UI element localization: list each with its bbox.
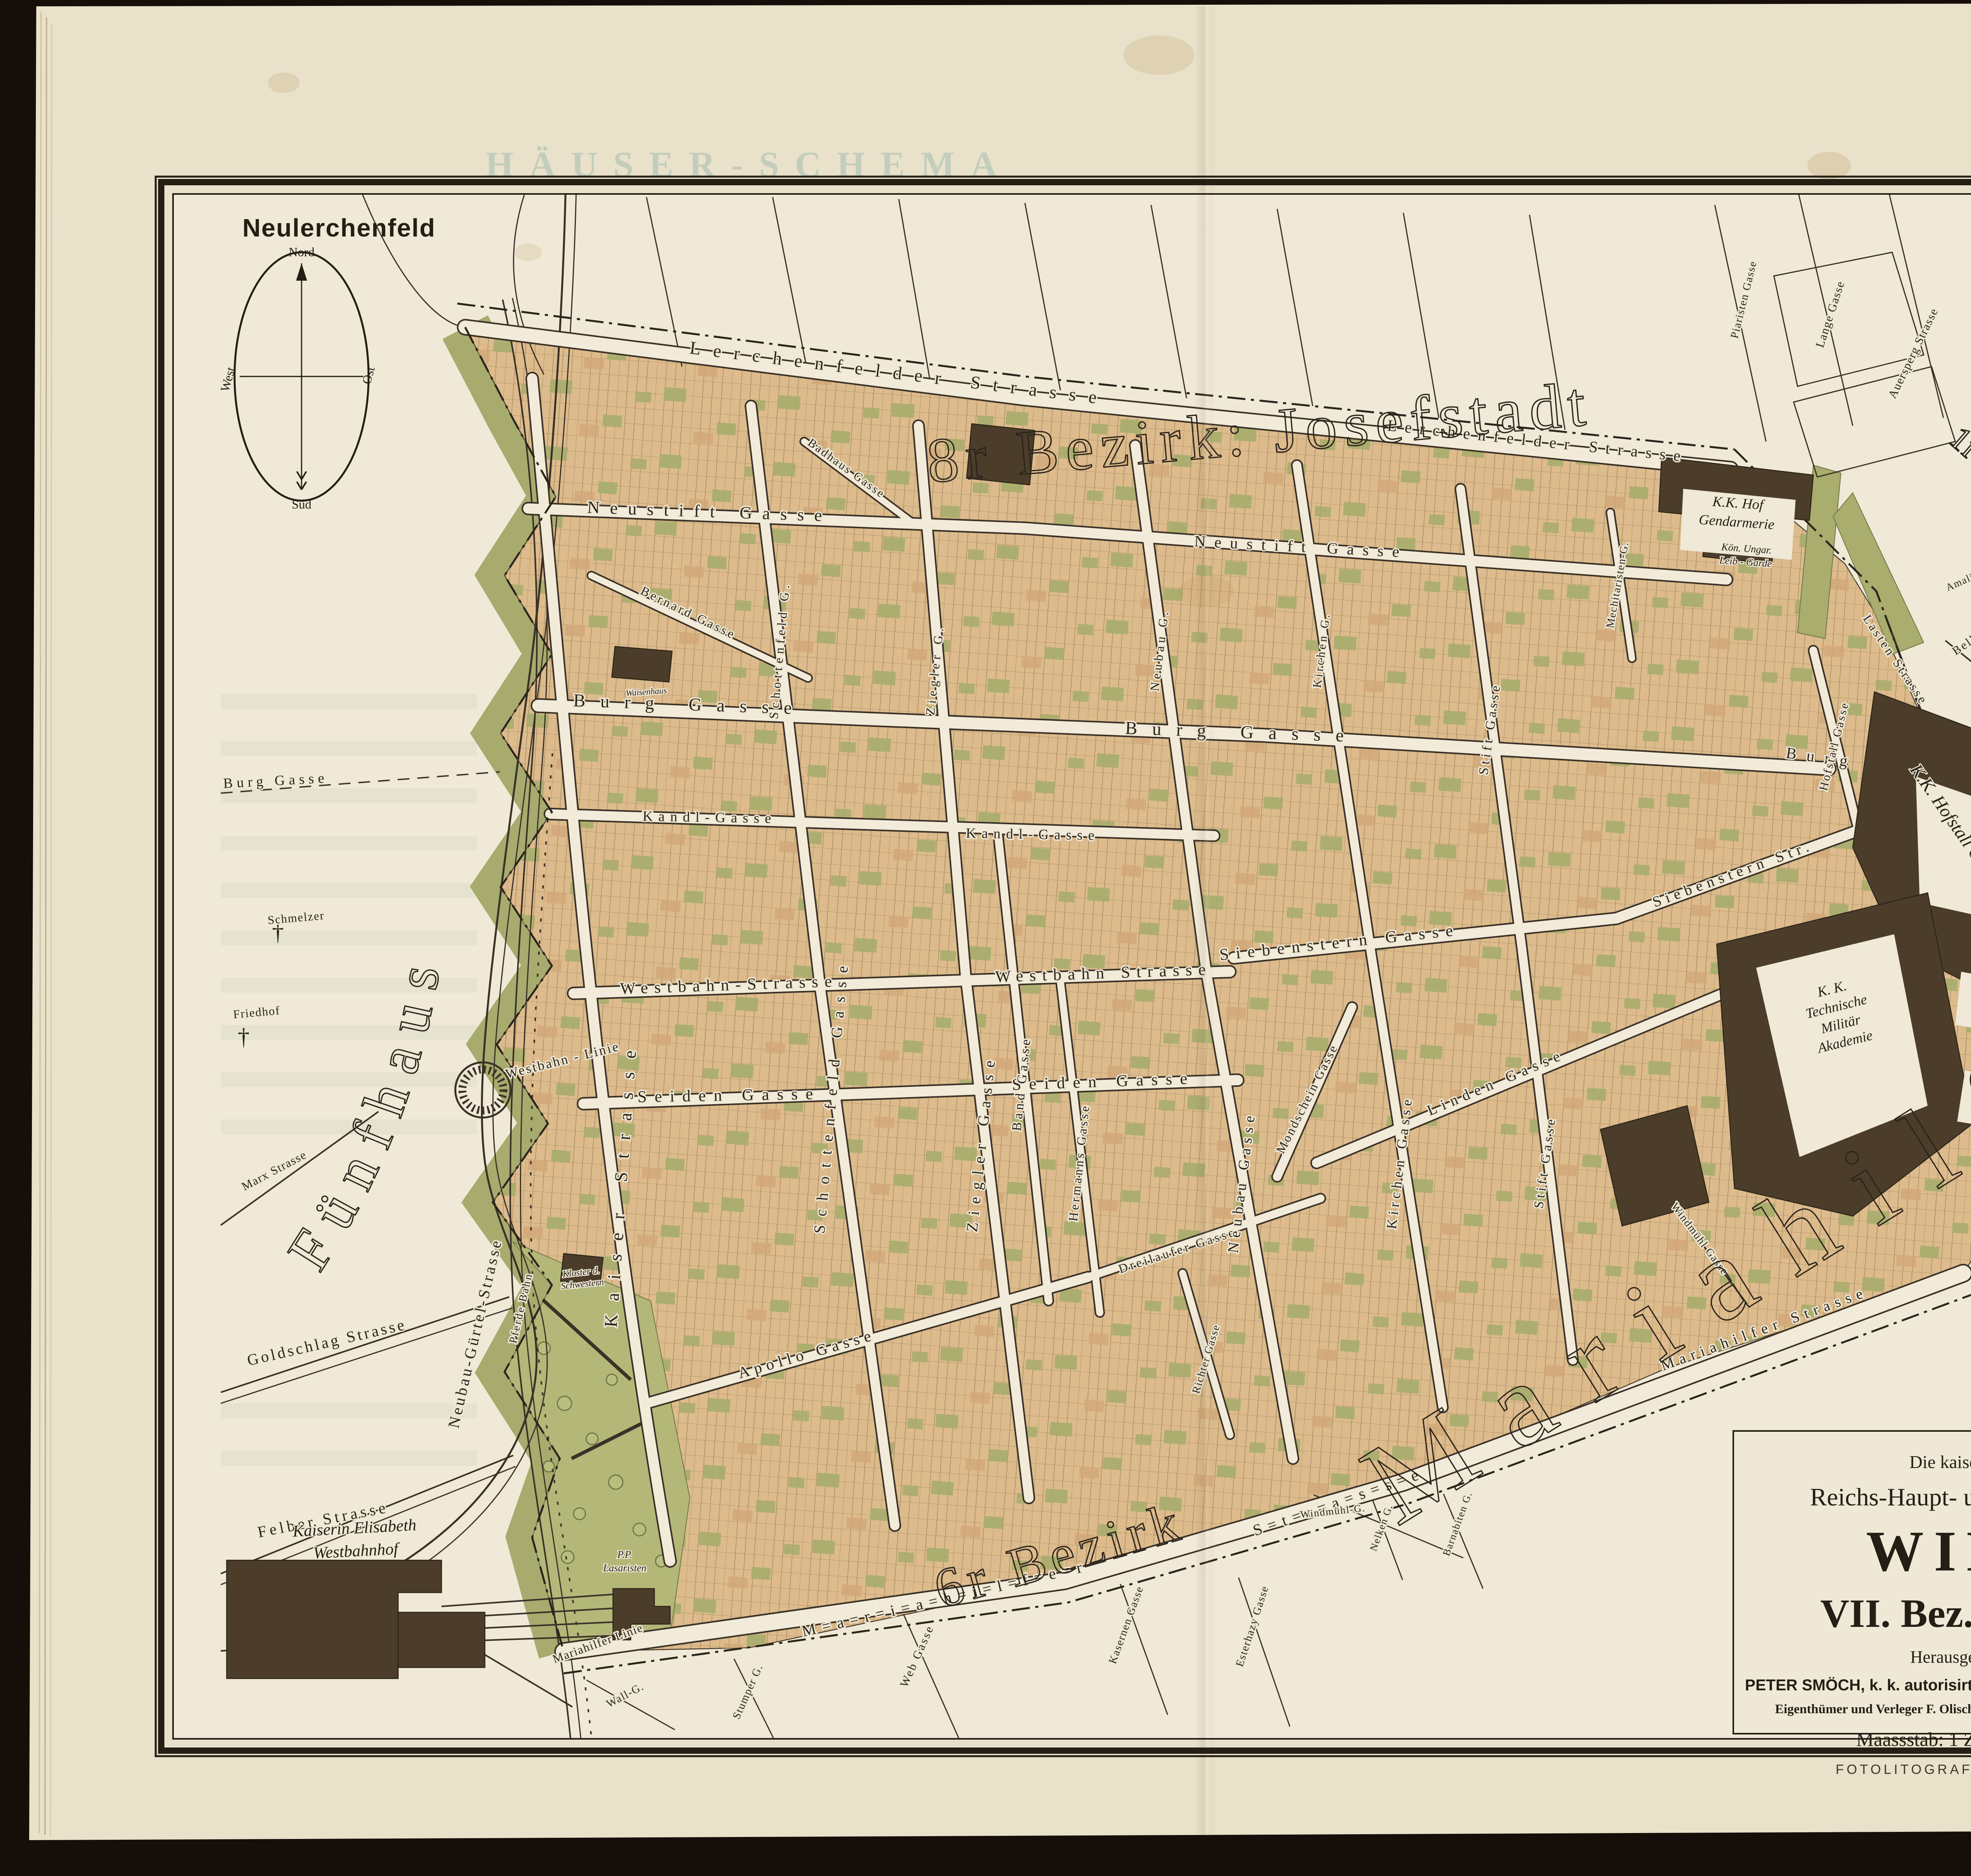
cartouche-owner: Eigenthümer und Verleger F. Olischer & F… — [1734, 1702, 1971, 1717]
waisenhaus-building — [612, 646, 672, 682]
cartouche-scale: Maassstab: 1 Zoll = 62 Klafter. — [1734, 1728, 1971, 1751]
cartouche-line: Herausgegeben von — [1734, 1647, 1971, 1667]
neulerchenfeld-label: Neulerchenfeld — [242, 214, 436, 242]
street-label: Kandl-Gasse — [643, 808, 777, 826]
title-cartouche: Die kaiserl. königl. Reichs-Haupt- und R… — [1733, 1430, 1971, 1734]
cross-icon: † — [238, 1024, 250, 1050]
imprint: FOTOLITOGRAFIE v. L. C. ZAMARSKI, WIEN. — [1695, 1762, 1971, 1777]
cartouche-publisher: PETER SMÖCH, k. k. autorisirter und beei… — [1734, 1677, 1971, 1694]
street-label: Kandl-Gasse — [966, 825, 1100, 843]
scanned-map-page: HÄUSER-SCHEMA — [0, 0, 1971, 1876]
cartouche-line: Die kaiserl. königl. — [1734, 1451, 1971, 1472]
street-label: Seiden Gasse — [637, 1085, 821, 1106]
map-area: † † Nord Süd West Ost Neulerchenfeld Ler… — [174, 173, 1971, 1758]
map-canvas: HÄUSER-SCHEMA — [0, 0, 1971, 1876]
page-fold — [1194, 6, 1215, 1835]
map-title: WIEN, — [1734, 1518, 1971, 1584]
cartouche-line: Reichs-Haupt- und Residenzstadt — [1734, 1483, 1971, 1512]
svg-text:Nord: Nord — [289, 245, 315, 259]
map-subtitle: VII. Bez., Neubau. — [1734, 1591, 1971, 1637]
ghost-bleedthrough-text: HÄUSER-SCHEMA — [485, 144, 1013, 184]
svg-text:Süd: Süd — [292, 497, 311, 511]
westbahnhof-annex — [398, 1612, 485, 1667]
